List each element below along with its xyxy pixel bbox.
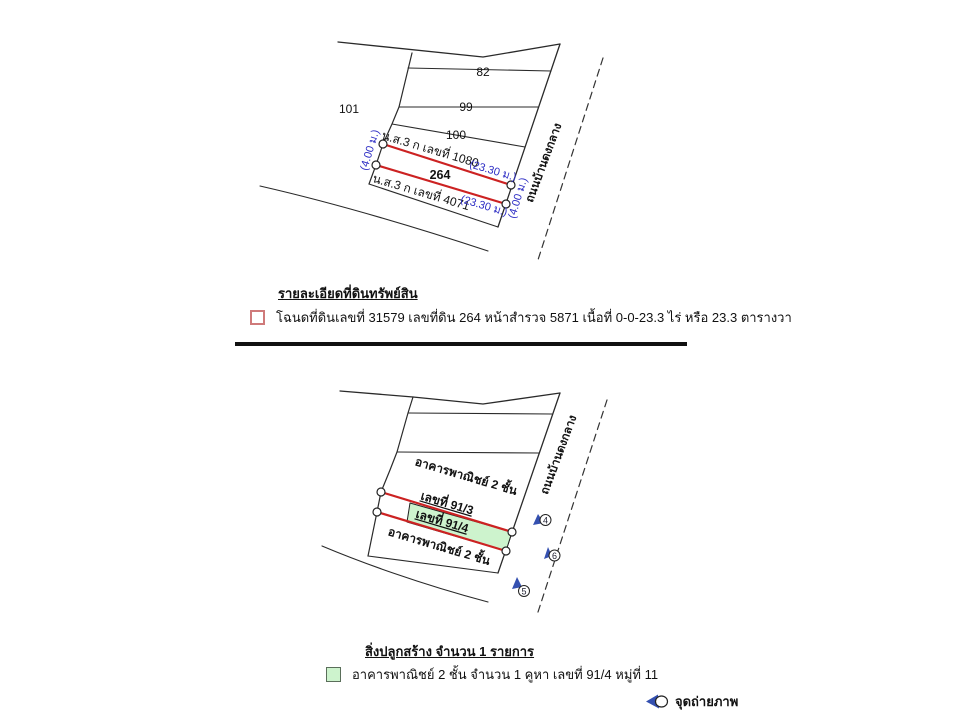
strip-line	[397, 452, 539, 453]
photo-point-circle	[656, 696, 668, 707]
photo-point-marker-6: 6	[544, 547, 560, 561]
building-swatch	[326, 667, 341, 682]
photo-point-legend-label: จุดถ่ายภาพ	[675, 691, 738, 712]
building-map-top-boundary	[340, 391, 560, 404]
parcel-corner-marker	[373, 508, 381, 516]
building-map: อาคารพาณิชย์ 2 ชั้น เลขที่ 91/3 เลขที่ 9…	[322, 391, 607, 612]
plot-number-101: 101	[339, 102, 359, 116]
strip-line	[408, 413, 552, 414]
section-divider	[235, 342, 687, 346]
land-parcel-swatch	[250, 310, 265, 325]
road-name-label: ถนนบ้านดงกลาง	[538, 413, 580, 496]
building-legend-heading: สิ่งปลูกสร้าง จำนวน 1 รายการ	[365, 641, 534, 662]
photo-point-marker-4: 4	[533, 514, 551, 526]
plot-number-100: 100	[446, 128, 466, 142]
photo-point-number: 6	[552, 551, 557, 561]
land-map: 101 82 99 100 264 น.ส.3 ก เลขที่ 1080 (2…	[260, 42, 603, 263]
photo-point-icon	[645, 693, 669, 710]
plot-number-264: 264	[430, 168, 451, 182]
photo-point-number: 4	[543, 516, 548, 526]
land-legend-item: โฉนดที่ดินเลขที่ 31579 เลขที่ดิน 264 หน้…	[250, 306, 792, 328]
survey-sketch-page: 101 82 99 100 264 น.ส.3 ก เลขที่ 1080 (2…	[0, 0, 960, 720]
boundary-doc-bottom-label: น.ส.3 ก เลขที่ 4071	[371, 169, 472, 213]
photo-point-marker-5: 5	[512, 577, 530, 597]
parcel-corner-marker	[377, 488, 385, 496]
plot-number-82: 82	[476, 65, 490, 79]
building-legend-item-text: อาคารพาณิชย์ 2 ชั้น จำนวน 1 คูหา เลขที่ …	[352, 664, 658, 685]
photo-point-legend: จุดถ่ายภาพ	[645, 691, 738, 712]
parcel-corner-marker	[502, 547, 510, 555]
plot-number-99: 99	[459, 100, 473, 114]
land-map-top-boundary	[338, 42, 560, 57]
parcel-corner-marker	[508, 528, 516, 536]
photo-point-number: 5	[521, 587, 526, 597]
land-legend-heading: รายละเอียดที่ดินทรัพย์สิน	[278, 283, 418, 304]
cadastral-maps-canvas: 101 82 99 100 264 น.ส.3 ก เลขที่ 1080 (2…	[0, 0, 960, 720]
parcel-corner-marker	[372, 161, 380, 169]
land-legend-item-text: โฉนดที่ดินเลขที่ 31579 เลขที่ดิน 264 หน้…	[276, 307, 792, 328]
building-legend-item: อาคารพาณิชย์ 2 ชั้น จำนวน 1 คูหา เลขที่ …	[326, 663, 658, 685]
